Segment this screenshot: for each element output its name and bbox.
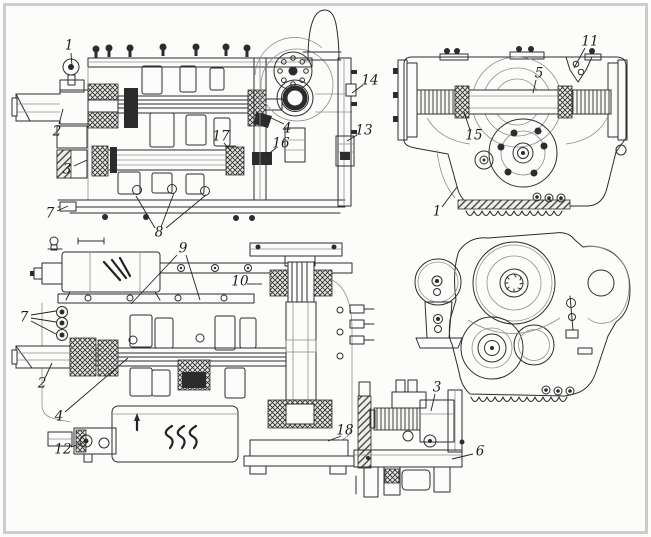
callout-5: 5 bbox=[535, 66, 544, 82]
view-end-section-upper-right bbox=[393, 46, 627, 216]
callout-1: 1 bbox=[433, 204, 442, 220]
callout-17: 17 bbox=[212, 129, 230, 145]
callout-12: 12 bbox=[54, 442, 71, 458]
callout-10: 10 bbox=[231, 274, 249, 290]
idler-gear bbox=[514, 325, 554, 365]
callout-18: 18 bbox=[336, 423, 354, 439]
callout-7: 7 bbox=[46, 206, 55, 222]
lower-shaft bbox=[92, 146, 244, 176]
callout-leader-7 bbox=[31, 318, 56, 322]
main-shaft-end bbox=[417, 86, 611, 118]
callout-11: 11 bbox=[581, 34, 598, 50]
gearbox-assembly-drawing: 12378171641413115151910724121836 bbox=[0, 0, 651, 537]
top-bolts bbox=[440, 46, 601, 60]
callout-15: 15 bbox=[465, 128, 482, 144]
loose-bolt bbox=[48, 237, 104, 250]
bottom-teeth bbox=[458, 193, 570, 216]
callout-leader-9 bbox=[186, 255, 200, 300]
callout-4: 4 bbox=[282, 121, 292, 137]
side-bolt-stack bbox=[350, 305, 374, 344]
callout-2: 2 bbox=[52, 124, 62, 140]
view-end-lower-right bbox=[415, 233, 630, 402]
callout-leader-7 bbox=[31, 311, 56, 315]
breather-bracket bbox=[566, 57, 592, 82]
callout-9: 9 bbox=[179, 241, 188, 257]
view-lower-longitudinal-section bbox=[12, 237, 374, 474]
oil-pan-unit bbox=[112, 406, 238, 462]
callout-leader-9 bbox=[131, 255, 177, 304]
rear-plates bbox=[336, 58, 357, 206]
callout-leader-11 bbox=[574, 48, 585, 68]
input-shaft-lower bbox=[12, 338, 96, 376]
pto-detail-view bbox=[354, 380, 465, 497]
lower-teeth bbox=[471, 386, 574, 402]
callout-2: 2 bbox=[37, 376, 47, 392]
callout-leader-3 bbox=[74, 160, 87, 166]
callout-8: 8 bbox=[155, 225, 164, 241]
callout-14: 14 bbox=[361, 73, 378, 89]
left-flange bbox=[393, 60, 417, 140]
callout-4: 4 bbox=[54, 409, 64, 425]
callout-leader-3 bbox=[431, 394, 435, 411]
callout-13: 13 bbox=[355, 123, 372, 139]
callout-leader-7 bbox=[31, 321, 56, 334]
shifter-dome bbox=[303, 10, 341, 60]
side-lobe bbox=[566, 247, 629, 354]
shift-cylinder bbox=[30, 252, 160, 300]
lower-left-gear bbox=[461, 317, 523, 379]
input-shaft bbox=[12, 90, 88, 124]
bottom-flange bbox=[58, 200, 345, 221]
cover-bolts bbox=[93, 44, 251, 59]
detail-shaft bbox=[370, 408, 420, 430]
callout-3: 3 bbox=[63, 162, 72, 178]
callout-7: 7 bbox=[20, 310, 29, 326]
callout-6: 6 bbox=[476, 444, 485, 460]
drain-plugs bbox=[57, 307, 68, 341]
pto-bolt-circle bbox=[489, 119, 557, 187]
callout-3: 3 bbox=[433, 380, 442, 396]
main-drive-gear bbox=[473, 242, 555, 324]
callout-leader-8 bbox=[136, 196, 155, 228]
lower-gears bbox=[118, 172, 210, 196]
callout-leader-8 bbox=[161, 193, 174, 227]
scanned-drawing-page: 12378171641413115151910724121836 bbox=[0, 0, 651, 537]
callout-16: 16 bbox=[272, 136, 290, 152]
callout-1: 1 bbox=[65, 38, 74, 54]
